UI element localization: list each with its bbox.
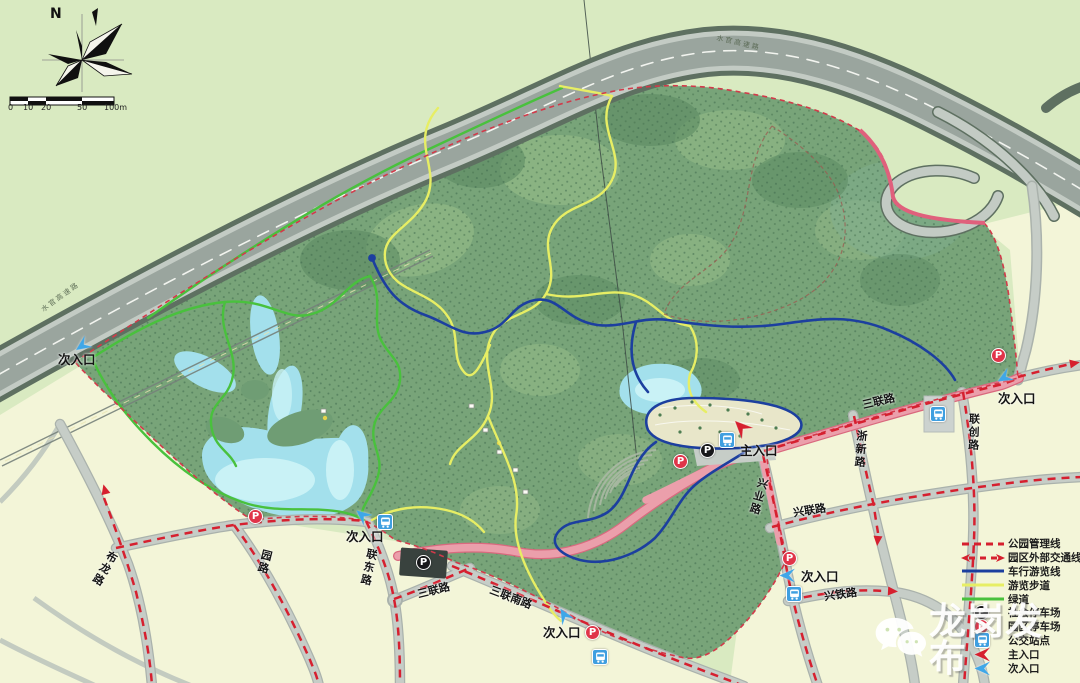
watermark-text: 龙岗发布 xyxy=(929,603,1080,677)
bus-stop-icon xyxy=(719,432,735,448)
dashed-line-symbol xyxy=(960,539,1008,549)
park-parking-icon: P xyxy=(782,551,797,566)
road-label-lianchuang: 联创路 xyxy=(964,413,981,453)
entrance-label-secondary-southeast: 次入口 xyxy=(801,566,839,585)
blue-line-symbol xyxy=(960,566,1008,576)
compass-rose: N xyxy=(18,4,134,98)
park-parking-icon: P xyxy=(248,509,263,524)
bus-stop-icon xyxy=(930,406,946,422)
road-label-zhexin: 浙新路 xyxy=(851,429,870,469)
bus-stop-icon xyxy=(592,649,608,665)
scale-tick: 10 xyxy=(23,103,33,112)
entrance-label-secondary-west: 次入口 xyxy=(58,349,96,368)
compass-north-label: N xyxy=(50,6,62,22)
legend-item: 公园管理线 xyxy=(960,537,1080,551)
entrance-label-secondary-southwest: 次入口 xyxy=(346,526,384,545)
scale-tick: 50 xyxy=(77,103,87,112)
entrance-label-secondary-northeast: 次入口 xyxy=(998,388,1036,407)
public-parking-icon: P xyxy=(700,443,715,458)
legend-item: 车行游览线 xyxy=(960,565,1080,579)
park-parking-icon: P xyxy=(991,348,1006,363)
legend-item: 游览步道 xyxy=(960,578,1080,592)
bus-stop-icon xyxy=(786,586,802,602)
secondary-entrance-arrow-icon xyxy=(779,568,796,583)
watermark: 龙岗发布 xyxy=(874,603,1080,677)
scale-bar: 0 10 20 50 100m xyxy=(8,92,138,118)
yellow-line-symbol xyxy=(960,580,1008,590)
dashed-arrow-line-symbol xyxy=(960,553,1008,563)
park-parking-ic: P xyxy=(585,625,600,640)
wechat-logo-icon xyxy=(874,615,926,665)
public-parking-icon: P xyxy=(416,555,431,570)
park-map: 布龙路 园路 联东路 三联路 三联南路 三联路 联创路 浙新路 兴业路 兴联路 … xyxy=(0,0,1080,683)
entrance-label-main: 主入口 xyxy=(740,440,778,459)
scale-tick: 100m xyxy=(104,103,127,112)
map-canvas xyxy=(0,0,1080,683)
scale-tick: 0 xyxy=(8,103,13,112)
entrance-label-secondary-south: 次入口 xyxy=(543,622,581,641)
legend-item: 园区外部交通线 xyxy=(960,551,1080,565)
park-parking-icon: P xyxy=(673,454,688,469)
scale-tick: 20 xyxy=(41,103,51,112)
